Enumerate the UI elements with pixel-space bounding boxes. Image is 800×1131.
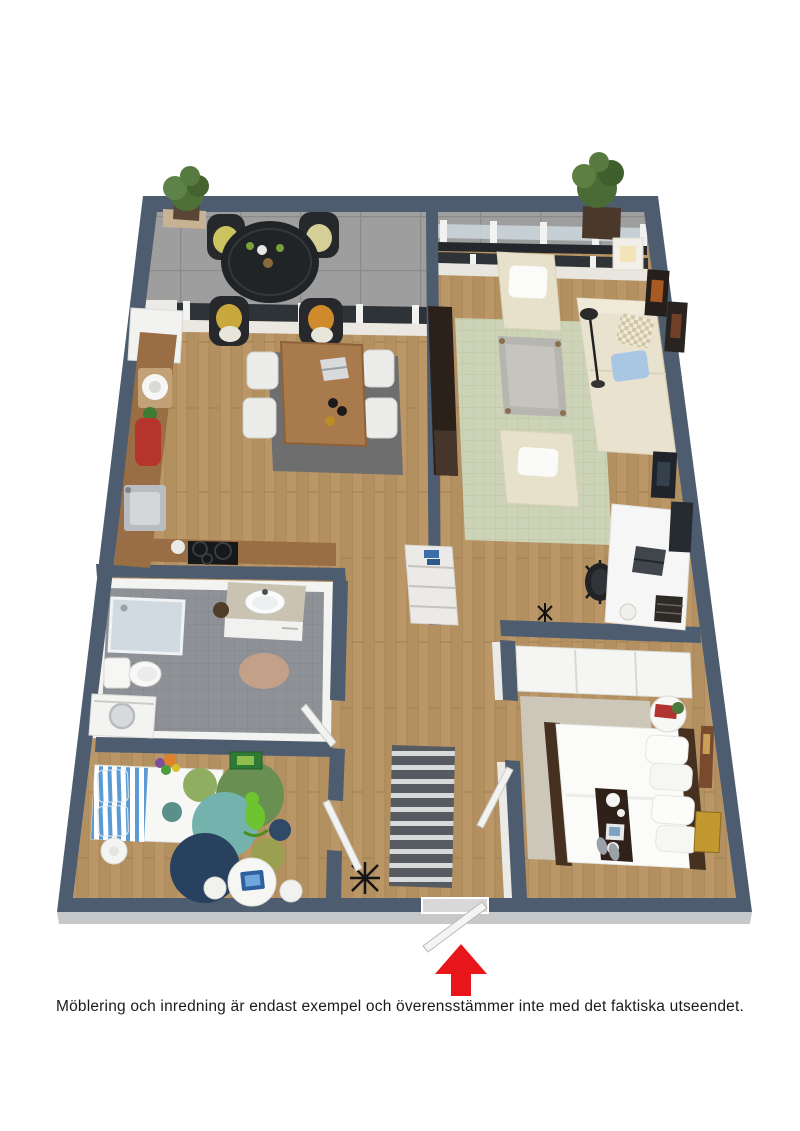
pillow <box>655 825 699 854</box>
stool <box>204 877 226 899</box>
chaise-lounge <box>497 252 561 331</box>
bedroom-side-table <box>650 696 686 732</box>
wall-hall-left-c <box>326 850 342 900</box>
shower <box>109 598 184 654</box>
pillow <box>651 795 695 826</box>
pillow-blue <box>610 350 650 383</box>
shelf-unit <box>405 545 458 625</box>
books <box>424 550 439 558</box>
pot <box>171 540 185 554</box>
small-plant <box>672 702 684 714</box>
stool <box>280 880 302 902</box>
cutting-board <box>138 368 172 408</box>
pillow <box>649 763 693 792</box>
entrance-arrow-icon <box>435 944 487 996</box>
desk-lamp <box>620 604 636 620</box>
wall-hall-left-a <box>330 580 348 701</box>
washing-machine <box>89 694 156 738</box>
armchair <box>500 430 579 507</box>
dining-chair <box>243 398 276 438</box>
hall-runner-rug <box>389 745 455 888</box>
wardrobe <box>516 646 692 698</box>
floorplan-svg <box>0 0 800 1131</box>
plant-pot <box>582 206 621 240</box>
double-bed <box>544 722 706 870</box>
disclaimer-text: Möblering och inredning är endast exempe… <box>0 998 800 1016</box>
bathroom-round-rug <box>239 653 289 689</box>
kitchen-sink <box>124 485 166 531</box>
dining-chair <box>247 352 278 389</box>
dining-chair <box>364 398 397 438</box>
terrace-plant-left <box>163 166 209 229</box>
bench <box>694 811 721 852</box>
box-lamp <box>613 238 643 270</box>
coffee-table <box>498 336 567 417</box>
book-stack <box>654 595 683 623</box>
floorplan-stage: Möblering och inredning är endast exempe… <box>0 0 800 1131</box>
outer-wall-bottom-face <box>57 912 752 924</box>
basket <box>213 602 229 618</box>
books <box>427 559 440 565</box>
vanity-sink <box>224 582 306 641</box>
dining-chair <box>363 350 394 387</box>
pillow <box>645 735 689 766</box>
kids-bedside-lamp <box>101 838 127 864</box>
dining-table <box>281 342 366 446</box>
